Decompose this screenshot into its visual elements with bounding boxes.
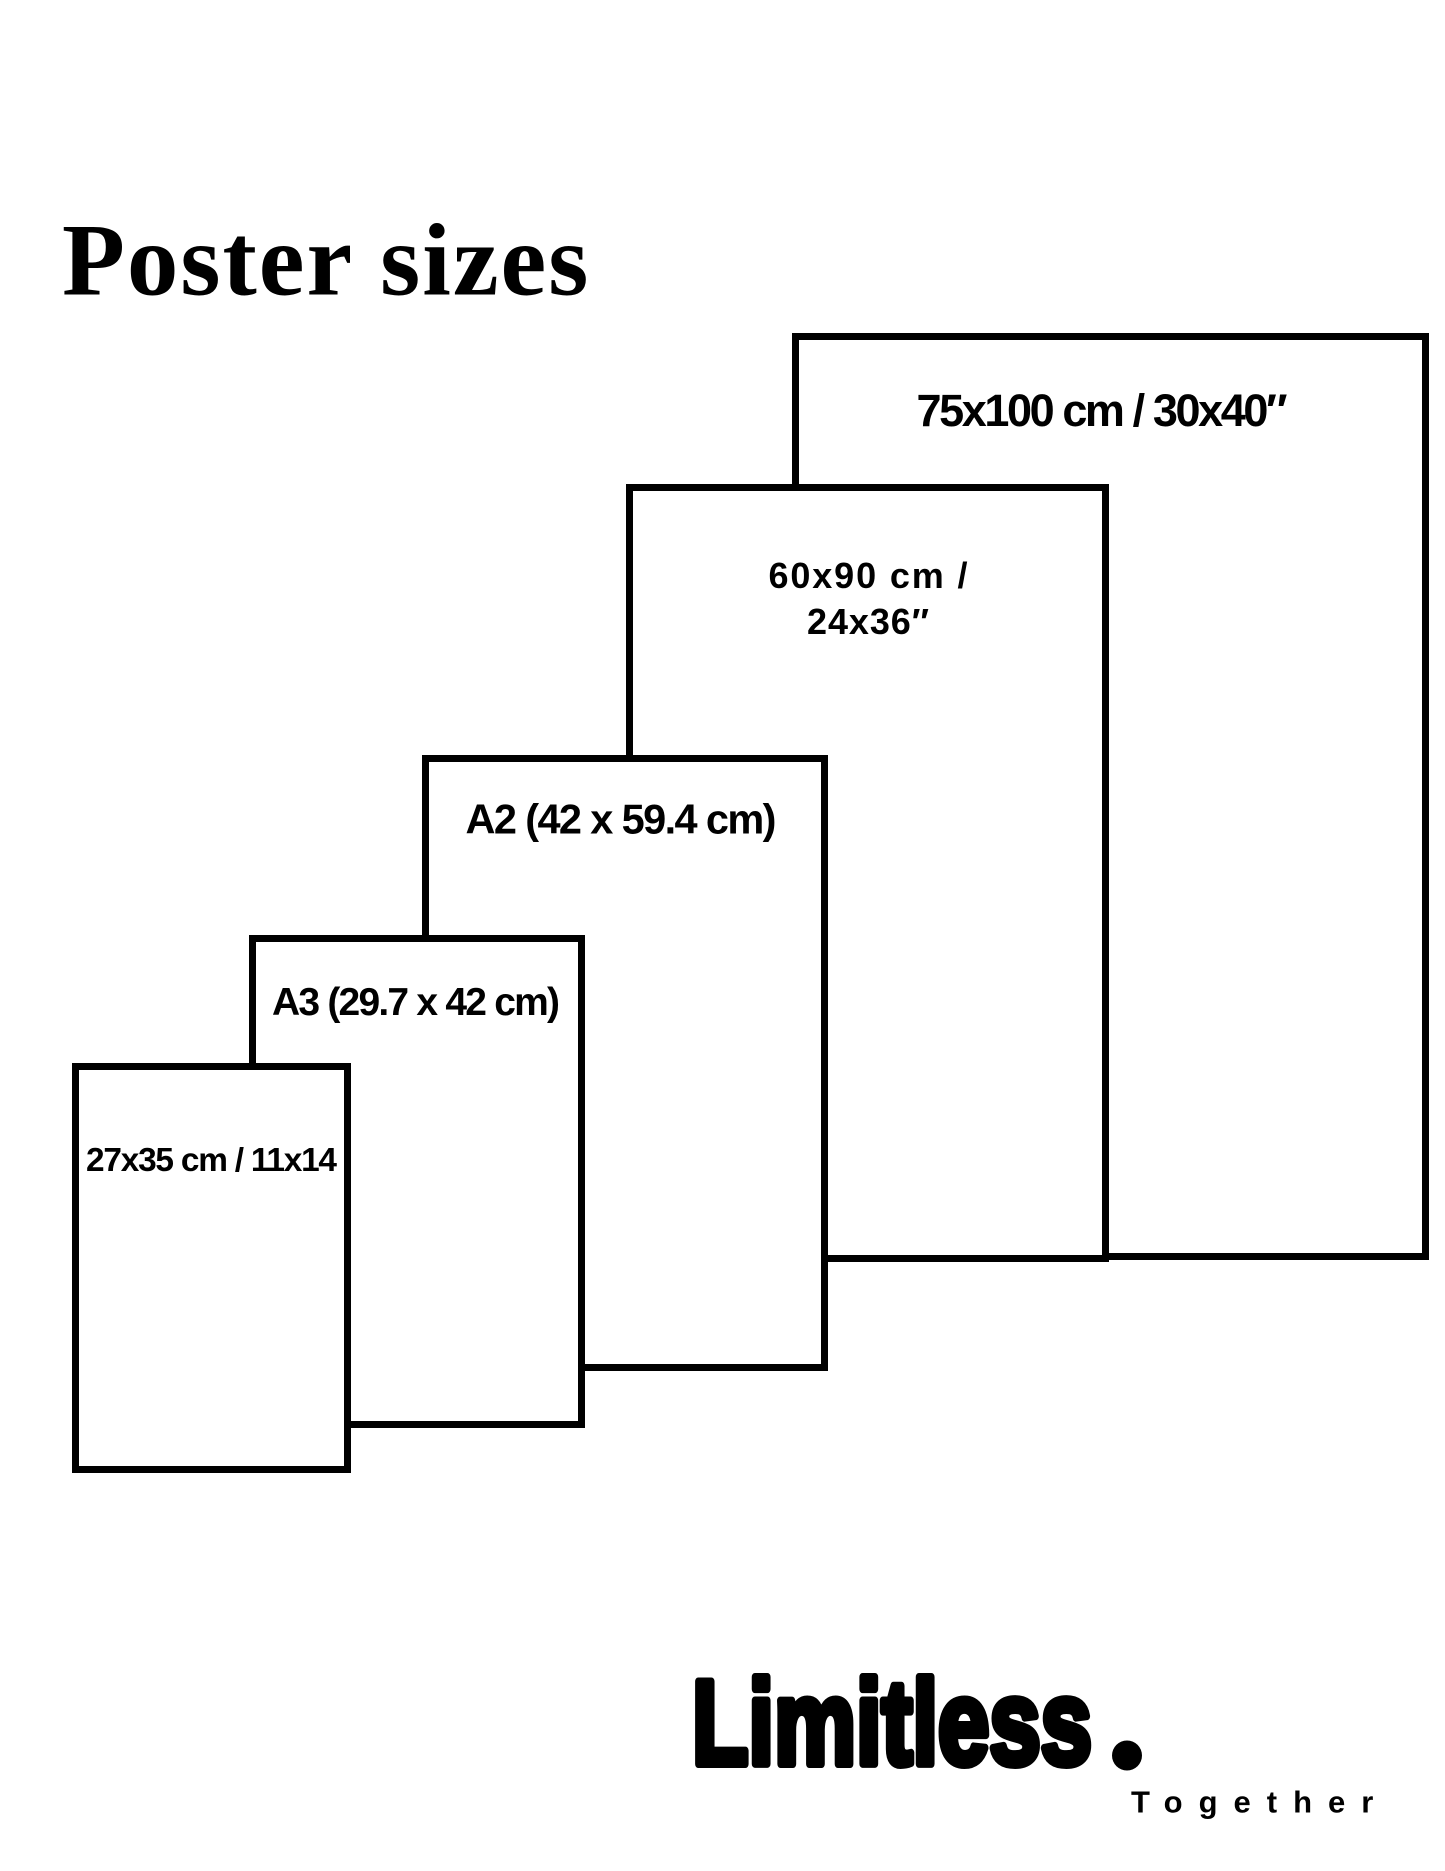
svg-text:60x90 cm /: 60x90 cm /: [769, 555, 968, 596]
svg-text:27x35 cm / 11x14: 27x35 cm / 11x14: [86, 1142, 337, 1179]
svg-text:Poster sizes: Poster sizes: [62, 204, 590, 318]
svg-text:A3 (29.7 x 42 cm): A3 (29.7 x 42 cm): [272, 981, 560, 1024]
svg-text:A2 (42 x 59.4 cm): A2 (42 x 59.4 cm): [466, 796, 777, 843]
svg-text:Together: Together: [1131, 1785, 1389, 1820]
svg-text:24x36″: 24x36″: [807, 601, 929, 642]
svg-text:Limitless: Limitless: [692, 1656, 1092, 1790]
svg-text:75x100 cm / 30x40″: 75x100 cm / 30x40″: [917, 385, 1288, 436]
